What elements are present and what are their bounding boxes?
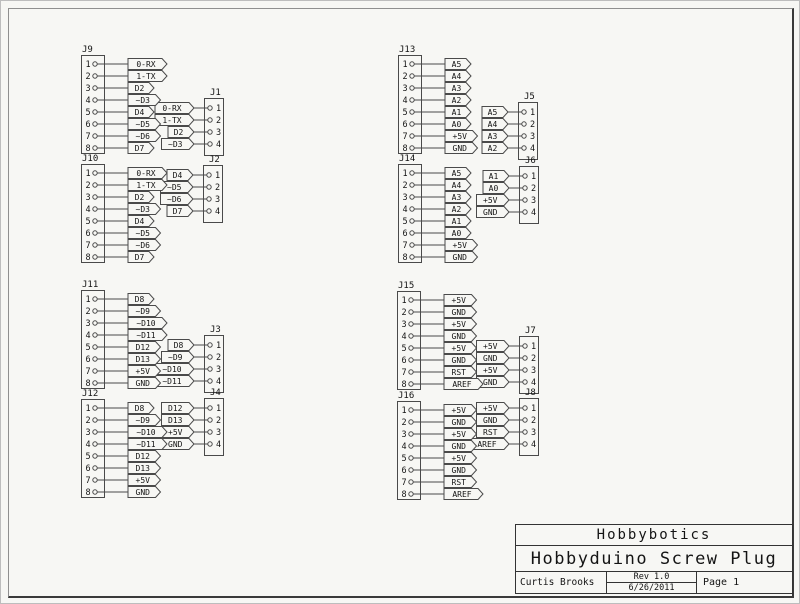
pin-circle bbox=[208, 118, 212, 122]
pin-circle bbox=[208, 142, 212, 146]
J11-pin-6: 6D13 bbox=[85, 354, 160, 366]
connector-name: J5 bbox=[524, 92, 535, 102]
pin-number: 4 bbox=[530, 144, 535, 154]
net-label: A1 bbox=[452, 108, 462, 117]
pin-number: 3 bbox=[215, 195, 220, 205]
net-label: D2 bbox=[174, 128, 184, 137]
net-label: +5V bbox=[483, 366, 498, 375]
net-label: A4 bbox=[452, 72, 462, 81]
pin-circle bbox=[93, 418, 97, 422]
J13-pin-5: 5A1 bbox=[402, 107, 471, 119]
pin-circle bbox=[409, 322, 413, 326]
net-label: GND bbox=[483, 354, 498, 363]
net-label: +5V bbox=[452, 344, 467, 353]
net-label: A4 bbox=[488, 120, 498, 129]
pin-circle bbox=[410, 195, 414, 199]
J10-pin-3: 3D2 bbox=[85, 192, 154, 204]
J11-pin-2: 2~D9 bbox=[85, 306, 160, 318]
net-label: A0 bbox=[452, 120, 462, 129]
net-label: GND bbox=[483, 416, 498, 425]
title-block-bottom-row: Curtis Brooks Rev 1.0 6/26/2011 Page 1 bbox=[516, 572, 792, 593]
net-label: GND bbox=[452, 466, 467, 475]
J12-pin-2: 2~D9 bbox=[85, 415, 160, 427]
pin-number: 5 bbox=[401, 454, 406, 464]
pin-number: 8 bbox=[85, 488, 90, 498]
pin-circle bbox=[93, 454, 97, 458]
J10-pin-4: 4~D3 bbox=[85, 204, 160, 216]
schematic-canvas: J110-RX21-TX3D24~D3J21D42~D53~D64D7J31D8… bbox=[1, 1, 800, 604]
pin-circle bbox=[93, 98, 97, 102]
pin-number: 7 bbox=[85, 132, 90, 142]
net-label: +5V bbox=[483, 196, 498, 205]
J9-pin-2: 21-TX bbox=[85, 71, 167, 83]
connector-name: J4 bbox=[210, 388, 221, 398]
pin-number: 7 bbox=[85, 476, 90, 486]
J1-pin-2: 21-TX bbox=[155, 115, 221, 127]
J15-pin-3: 3+5V bbox=[401, 319, 476, 331]
pin-circle bbox=[523, 210, 527, 214]
pin-number: 1 bbox=[85, 404, 90, 414]
connector-J6: J61A12A03+5V4GND bbox=[477, 156, 539, 224]
net-label: +5V bbox=[453, 241, 468, 250]
pin-circle bbox=[410, 255, 414, 259]
net-label: D4 bbox=[173, 171, 183, 180]
pin-circle bbox=[410, 122, 414, 126]
J11-pin-8: 8GND bbox=[85, 378, 160, 390]
sheet-title: Hobbyduino Screw Plug bbox=[516, 546, 792, 572]
net-label: GND bbox=[136, 379, 151, 388]
net-label: A4 bbox=[452, 181, 462, 190]
pin-number: 8 bbox=[85, 253, 90, 263]
net-label: A2 bbox=[452, 205, 462, 214]
pin-number: 2 bbox=[401, 418, 406, 428]
net-label: A3 bbox=[452, 193, 462, 202]
pin-circle bbox=[93, 171, 97, 175]
pin-circle bbox=[207, 173, 211, 177]
J13-pin-2: 2A4 bbox=[402, 71, 471, 83]
net-label: RST bbox=[483, 428, 498, 437]
net-label: GND bbox=[483, 208, 498, 217]
J13-pin-1: 1A5 bbox=[402, 59, 471, 71]
J9-pin-8: 8D7 bbox=[85, 143, 154, 155]
pin-circle bbox=[409, 480, 413, 484]
connector-J5: J51A52A43A34A2 bbox=[482, 92, 538, 160]
pin-number: 1 bbox=[85, 295, 90, 305]
net-label: ~D6 bbox=[136, 241, 151, 250]
net-label: D12 bbox=[136, 452, 151, 461]
pin-circle bbox=[523, 406, 527, 410]
J14-pin-2: 2A4 bbox=[402, 180, 471, 192]
J4-pin-4: 4GND bbox=[162, 439, 222, 451]
J11-pin-7: 7+5V bbox=[85, 366, 160, 378]
pin-number: 3 bbox=[531, 196, 536, 206]
pin-number: 3 bbox=[401, 320, 406, 330]
pin-circle bbox=[208, 343, 212, 347]
net-label: D13 bbox=[136, 464, 151, 473]
pin-number: 2 bbox=[402, 72, 407, 82]
net-label: +5V bbox=[136, 367, 151, 376]
pin-number: 4 bbox=[531, 208, 536, 218]
net-label: RST bbox=[452, 478, 467, 487]
pin-number: 4 bbox=[531, 378, 536, 388]
net-label: ~D11 bbox=[162, 377, 181, 386]
pin-number: 1 bbox=[531, 404, 536, 414]
J6-pin-3: 3+5V bbox=[477, 195, 537, 207]
J7-pin-3: 3+5V bbox=[477, 365, 537, 377]
J16-pin-8: 8AREF bbox=[401, 489, 483, 501]
pin-circle bbox=[93, 406, 97, 410]
pin-circle bbox=[93, 309, 97, 313]
net-label: 1-TX bbox=[162, 116, 181, 125]
J3-pin-1: 1D8 bbox=[168, 340, 221, 352]
pin-number: 1 bbox=[531, 342, 536, 352]
pin-number: 2 bbox=[85, 181, 90, 191]
pin-circle bbox=[409, 358, 413, 362]
pin-number: 1 bbox=[216, 404, 221, 414]
pin-circle bbox=[93, 466, 97, 470]
net-label: A1 bbox=[452, 217, 462, 226]
pin-number: 3 bbox=[531, 428, 536, 438]
pin-number: 2 bbox=[531, 354, 536, 364]
connector-J10: J1010-RX21-TX3D24~D35D46~D57~D68D7 bbox=[82, 154, 168, 263]
pin-number: 6 bbox=[401, 356, 406, 366]
pin-circle bbox=[208, 418, 212, 422]
J6-pin-2: 2A0 bbox=[483, 183, 536, 195]
J8-pin-4: 4AREF bbox=[470, 439, 536, 451]
J5-pin-3: 3A3 bbox=[482, 131, 535, 143]
pin-number: 2 bbox=[216, 353, 221, 363]
pin-number: 4 bbox=[85, 205, 90, 215]
pin-circle bbox=[409, 382, 413, 386]
J6-pin-4: 4GND bbox=[477, 207, 537, 219]
J1-pin-4: 4~D3 bbox=[162, 139, 222, 151]
pin-number: 3 bbox=[216, 428, 221, 438]
pin-circle bbox=[409, 346, 413, 350]
J7-pin-1: 1+5V bbox=[477, 341, 537, 353]
J16-pin-1: 1+5V bbox=[401, 405, 476, 417]
pin-number: 4 bbox=[216, 140, 221, 150]
pin-circle bbox=[207, 185, 211, 189]
connector-name: J15 bbox=[398, 281, 414, 291]
J16-pin-3: 3+5V bbox=[401, 429, 476, 441]
pin-number: 3 bbox=[402, 84, 407, 94]
pin-circle bbox=[409, 408, 413, 412]
pin-number: 1 bbox=[216, 341, 221, 351]
J12-pin-5: 5D12 bbox=[85, 451, 160, 463]
pin-number: 4 bbox=[531, 440, 536, 450]
pin-number: 5 bbox=[402, 108, 407, 118]
pin-number: 2 bbox=[85, 307, 90, 317]
connector-J8: J81+5V2GND3RST4AREF bbox=[470, 388, 539, 456]
connector-name: J1 bbox=[210, 88, 221, 98]
J13-pin-8: 8GND bbox=[402, 143, 477, 155]
J12-pin-8: 8GND bbox=[85, 487, 160, 499]
pin-circle bbox=[208, 406, 212, 410]
pin-number: 7 bbox=[402, 241, 407, 251]
connector-J1: J110-RX21-TX3D24~D3 bbox=[155, 88, 224, 156]
net-label: ~D11 bbox=[136, 331, 155, 340]
pin-circle bbox=[522, 134, 526, 138]
net-label: ~D5 bbox=[136, 229, 151, 238]
pin-number: 4 bbox=[215, 207, 220, 217]
pin-circle bbox=[93, 345, 97, 349]
connector-name: J7 bbox=[525, 326, 536, 336]
connector-J2: J21D42~D53~D64D7 bbox=[161, 155, 223, 223]
net-label: GND bbox=[452, 308, 467, 317]
pin-circle bbox=[410, 86, 414, 90]
connector-J13: J131A52A43A34A25A16A07+5V8GND bbox=[399, 45, 478, 154]
pin-number: 3 bbox=[85, 193, 90, 203]
J4-pin-1: 1D12 bbox=[162, 403, 222, 415]
J2-pin-3: 3~D6 bbox=[161, 194, 221, 206]
pin-number: 7 bbox=[401, 368, 406, 378]
J13-pin-7: 7+5V bbox=[402, 131, 477, 143]
pin-circle bbox=[523, 430, 527, 434]
net-label: D7 bbox=[135, 144, 145, 153]
pin-circle bbox=[409, 432, 413, 436]
J9-pin-5: 5D4 bbox=[85, 107, 154, 119]
connector-name: J2 bbox=[209, 155, 220, 165]
J15-pin-6: 6GND bbox=[401, 355, 476, 367]
pin-circle bbox=[410, 146, 414, 150]
pin-circle bbox=[523, 442, 527, 446]
net-label: D2 bbox=[135, 193, 145, 202]
pin-circle bbox=[523, 174, 527, 178]
pin-circle bbox=[523, 356, 527, 360]
J13-pin-4: 4A2 bbox=[402, 95, 471, 107]
net-label: ~D3 bbox=[168, 140, 183, 149]
pin-circle bbox=[410, 207, 414, 211]
J3-pin-3: 3~D10 bbox=[155, 364, 221, 376]
pin-circle bbox=[409, 298, 413, 302]
pin-circle bbox=[409, 444, 413, 448]
pin-number: 1 bbox=[530, 108, 535, 118]
revision: Rev 1.0 bbox=[607, 572, 696, 583]
pin-number: 5 bbox=[401, 344, 406, 354]
pin-number: 6 bbox=[85, 229, 90, 239]
J11-pin-1: 1D8 bbox=[85, 294, 154, 306]
J14-pin-5: 5A1 bbox=[402, 216, 471, 228]
pin-number: 8 bbox=[85, 144, 90, 154]
J14-pin-7: 7+5V bbox=[402, 240, 477, 252]
net-label: ~D6 bbox=[136, 132, 151, 141]
pin-circle bbox=[93, 62, 97, 66]
net-label: D7 bbox=[135, 253, 145, 262]
pin-number: 3 bbox=[85, 428, 90, 438]
connector-name: J12 bbox=[82, 389, 98, 399]
pin-circle bbox=[208, 355, 212, 359]
J11-pin-5: 5D12 bbox=[85, 342, 160, 354]
net-label: D4 bbox=[135, 217, 145, 226]
connector-J16: J161+5V2GND3+5V4GND5+5V6GND7RST8AREF bbox=[398, 391, 484, 500]
pin-number: 7 bbox=[85, 367, 90, 377]
J6-pin-1: 1A1 bbox=[483, 171, 536, 183]
J10-pin-7: 7~D6 bbox=[85, 240, 160, 252]
J16-pin-5: 5+5V bbox=[401, 453, 476, 465]
pin-number: 3 bbox=[85, 319, 90, 329]
net-label: D13 bbox=[168, 416, 183, 425]
pin-circle bbox=[410, 62, 414, 66]
net-label: +5V bbox=[452, 296, 467, 305]
net-label: ~D9 bbox=[136, 307, 151, 316]
net-label: D2 bbox=[135, 84, 145, 93]
pin-number: 8 bbox=[85, 379, 90, 389]
pin-circle bbox=[409, 310, 413, 314]
J12-pin-7: 7+5V bbox=[85, 475, 160, 487]
J12-pin-4: 4~D11 bbox=[85, 439, 167, 451]
pin-circle bbox=[93, 183, 97, 187]
J8-pin-3: 3RST bbox=[477, 427, 537, 439]
pin-circle bbox=[410, 110, 414, 114]
pin-number: 2 bbox=[216, 116, 221, 126]
J1-pin-3: 3D2 bbox=[168, 127, 221, 139]
connector-J9: J910-RX21-TX3D24~D35D46~D57~D68D7 bbox=[82, 45, 168, 154]
J2-pin-2: 2~D5 bbox=[161, 182, 221, 194]
pin-number: 6 bbox=[402, 229, 407, 239]
connector-name: J6 bbox=[525, 156, 536, 166]
pin-circle bbox=[523, 198, 527, 202]
pin-number: 6 bbox=[85, 464, 90, 474]
J14-pin-1: 1A5 bbox=[402, 168, 471, 180]
J13-pin-6: 6A0 bbox=[402, 119, 471, 131]
connector-name: J13 bbox=[399, 45, 415, 55]
J5-pin-1: 1A5 bbox=[482, 107, 535, 119]
J5-pin-2: 2A4 bbox=[482, 119, 535, 131]
pin-circle bbox=[523, 368, 527, 372]
net-label: A1 bbox=[489, 172, 499, 181]
J15-pin-5: 5+5V bbox=[401, 343, 476, 355]
pin-circle bbox=[93, 357, 97, 361]
page-number: Page 1 bbox=[697, 572, 792, 593]
pin-circle bbox=[93, 255, 97, 259]
J15-pin-2: 2GND bbox=[401, 307, 476, 319]
pin-circle bbox=[93, 134, 97, 138]
pin-circle bbox=[410, 231, 414, 235]
net-label: 0-RX bbox=[136, 60, 155, 69]
pin-number: 4 bbox=[85, 331, 90, 341]
pin-number: 2 bbox=[530, 120, 535, 130]
net-label: D8 bbox=[135, 404, 145, 413]
pin-circle bbox=[93, 86, 97, 90]
connector-name: J16 bbox=[398, 391, 414, 401]
connector-name: J9 bbox=[82, 45, 93, 55]
net-label: ~D9 bbox=[168, 353, 183, 362]
pin-circle bbox=[409, 334, 413, 338]
title-block: Hobbybotics Hobbyduino Screw Plug Curtis… bbox=[515, 524, 793, 594]
net-label: +5V bbox=[452, 320, 467, 329]
net-label: GND bbox=[483, 378, 498, 387]
J3-pin-4: 4~D11 bbox=[155, 376, 221, 388]
J12-pin-1: 1D8 bbox=[85, 403, 154, 415]
J5-pin-4: 4A2 bbox=[482, 143, 535, 155]
J10-pin-2: 21-TX bbox=[85, 180, 167, 192]
J14-pin-4: 4A2 bbox=[402, 204, 471, 216]
pin-number: 1 bbox=[402, 60, 407, 70]
J1-pin-1: 10-RX bbox=[155, 103, 221, 115]
net-label: GND bbox=[453, 144, 468, 153]
pin-number: 3 bbox=[216, 128, 221, 138]
net-label: +5V bbox=[452, 406, 467, 415]
net-label: ~D5 bbox=[167, 183, 182, 192]
pin-circle bbox=[208, 106, 212, 110]
net-label: 1-TX bbox=[136, 181, 155, 190]
net-label: D13 bbox=[136, 355, 151, 364]
pin-circle bbox=[523, 344, 527, 348]
net-label: +5V bbox=[483, 404, 498, 413]
connector-name: J3 bbox=[210, 325, 221, 335]
net-label: +5V bbox=[452, 430, 467, 439]
net-label: GND bbox=[452, 332, 467, 341]
pin-number: 2 bbox=[85, 72, 90, 82]
pin-number: 4 bbox=[401, 442, 406, 452]
pin-circle bbox=[93, 122, 97, 126]
pin-number: 6 bbox=[402, 120, 407, 130]
pin-circle bbox=[93, 74, 97, 78]
pin-number: 1 bbox=[531, 172, 536, 182]
pin-circle bbox=[410, 74, 414, 78]
J11-pin-4: 4~D11 bbox=[85, 330, 167, 342]
J4-pin-3: 3+5V bbox=[162, 427, 222, 439]
pin-circle bbox=[208, 442, 212, 446]
pin-number: 2 bbox=[402, 181, 407, 191]
net-label: GND bbox=[136, 488, 151, 497]
net-label: AREF bbox=[477, 440, 496, 449]
pin-circle bbox=[410, 171, 414, 175]
pin-circle bbox=[93, 243, 97, 247]
net-label: A2 bbox=[452, 96, 462, 105]
pin-circle bbox=[522, 110, 526, 114]
net-label: ~D10 bbox=[136, 319, 155, 328]
pin-number: 1 bbox=[401, 406, 406, 416]
net-label: 0-RX bbox=[162, 104, 181, 113]
pin-number: 7 bbox=[401, 478, 406, 488]
pin-circle bbox=[93, 146, 97, 150]
pin-circle bbox=[93, 219, 97, 223]
J10-pin-6: 6~D5 bbox=[85, 228, 160, 240]
net-label: A5 bbox=[452, 169, 462, 178]
connector-name: J10 bbox=[82, 154, 98, 164]
net-label: GND bbox=[452, 418, 467, 427]
net-label: ~D11 bbox=[136, 440, 155, 449]
J12-pin-3: 3~D10 bbox=[85, 427, 167, 439]
pin-number: 1 bbox=[401, 296, 406, 306]
J13-pin-3: 3A3 bbox=[402, 83, 471, 95]
J10-pin-1: 10-RX bbox=[85, 168, 167, 180]
pin-circle bbox=[93, 110, 97, 114]
pin-circle bbox=[93, 195, 97, 199]
pin-number: 4 bbox=[85, 96, 90, 106]
net-label: +5V bbox=[453, 132, 468, 141]
net-label: GND bbox=[168, 440, 183, 449]
connector-name: J11 bbox=[82, 280, 98, 290]
connector-J11: J111D82~D93~D104~D115D126D137+5V8GND bbox=[82, 280, 168, 389]
pin-number: 8 bbox=[401, 490, 406, 500]
pin-number: 1 bbox=[402, 169, 407, 179]
pin-number: 3 bbox=[85, 84, 90, 94]
net-label: A3 bbox=[488, 132, 498, 141]
pin-number: 4 bbox=[216, 440, 221, 450]
company-name: Hobbybotics bbox=[516, 525, 792, 546]
pin-circle bbox=[409, 370, 413, 374]
J15-pin-1: 1+5V bbox=[401, 295, 476, 307]
pin-circle bbox=[93, 430, 97, 434]
J9-pin-1: 10-RX bbox=[85, 59, 167, 71]
J16-pin-2: 2GND bbox=[401, 417, 476, 429]
J9-pin-7: 7~D6 bbox=[85, 131, 160, 143]
J15-pin-4: 4GND bbox=[401, 331, 476, 343]
pin-number: 2 bbox=[216, 416, 221, 426]
connector-name: J8 bbox=[525, 388, 536, 398]
